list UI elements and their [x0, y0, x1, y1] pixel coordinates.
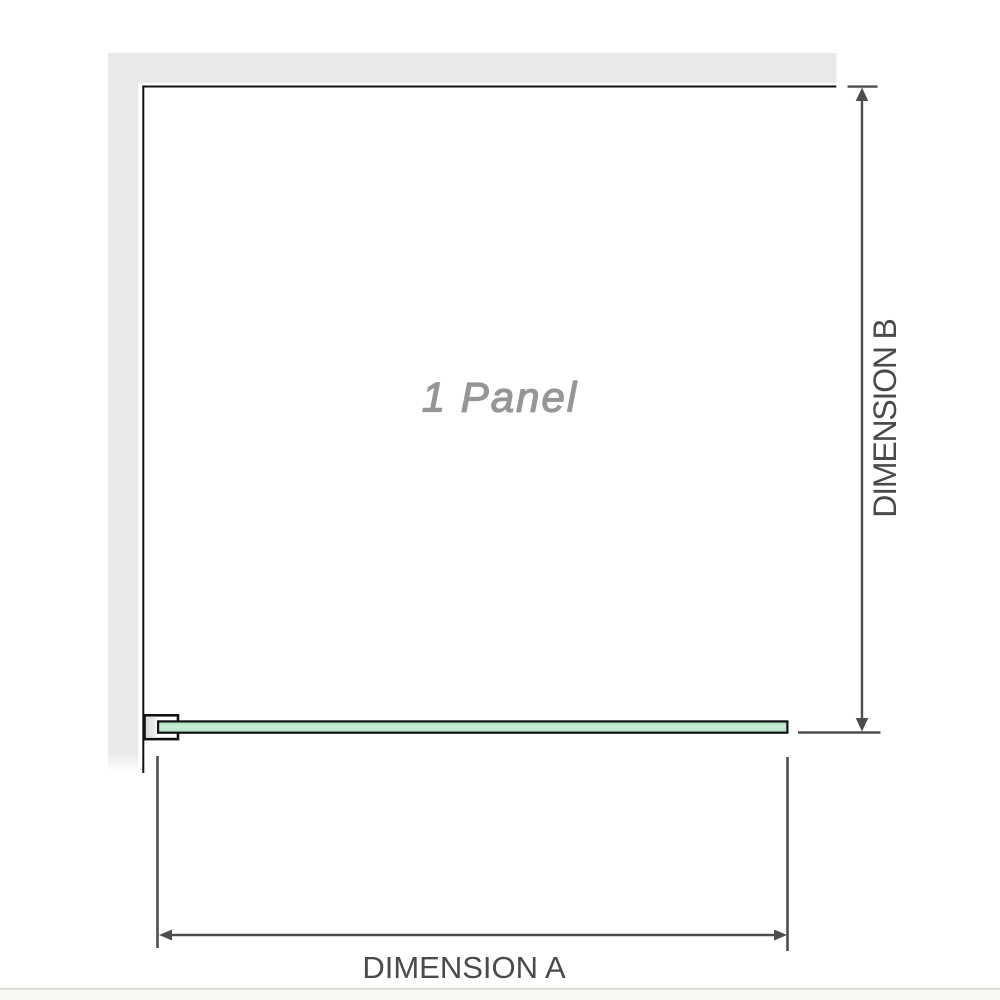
svg-text:1 Panel: 1 Panel [422, 374, 578, 421]
svg-text:DIMENSION A: DIMENSION A [362, 950, 566, 985]
svg-text:DIMENSION B: DIMENSION B [867, 319, 903, 517]
